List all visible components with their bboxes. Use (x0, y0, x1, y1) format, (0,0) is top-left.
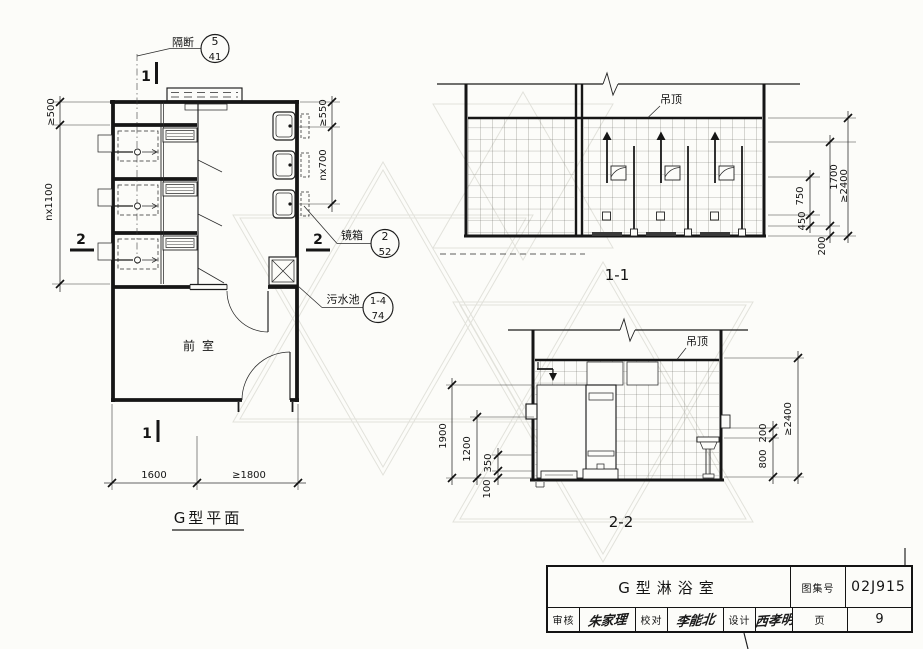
s22-ceiling-label: 吊顶 (686, 335, 708, 348)
section-marker-1-bottom: 1 (142, 420, 158, 442)
section-marker-2-left: 2 (70, 232, 94, 250)
section-2-2: 吊顶 1900 1200 350 100 (438, 319, 804, 531)
bench-3 (163, 236, 197, 250)
s22-dim-1900: 1900 (438, 423, 449, 448)
drawing-title: G型淋浴室 (548, 567, 791, 607)
shower-3 (98, 239, 158, 269)
partition-note-label: 隔断 (172, 35, 194, 49)
s11-structure (437, 73, 800, 254)
section-marker-2-right: 2 (306, 232, 330, 250)
s22-dim-100: 100 (482, 479, 493, 498)
drawing-canvas: 1 1 2 2 隔断 5 41 镜箱 2 (0, 0, 923, 649)
marker-1-top-label: 1 (141, 69, 151, 85)
page-number: 9 (848, 608, 911, 631)
mirror-note-den: 52 (379, 247, 392, 258)
s22-dim-total: ≥2400 (783, 402, 794, 436)
s22-dim-800: 800 (758, 449, 769, 468)
dim-left-top: ≥500 (46, 98, 57, 125)
dim-bottom-1: 1600 (141, 470, 166, 481)
partition-note-den: 41 (209, 52, 222, 63)
marker-1-bottom-label: 1 (142, 426, 152, 442)
s11-ceiling-note: 吊顶 (648, 93, 682, 118)
s22-dims-left: 1900 1200 350 100 (438, 378, 534, 499)
plan-view: 1 1 2 2 隔断 5 41 镜箱 2 (44, 35, 399, 531)
plan-top-vent (167, 88, 242, 110)
s22-dim-1200: 1200 (462, 436, 473, 461)
plan-title: G型平面 (172, 509, 244, 530)
s11-dim-200: 200 (817, 236, 828, 255)
s11-dim-750: 750 (795, 186, 806, 205)
plan-door-entrance (242, 352, 290, 400)
s22-dim-200: 200 (758, 423, 769, 442)
basin-1 (273, 112, 309, 140)
design-signature: 西孝明 (756, 608, 793, 631)
plan-showers (98, 54, 158, 269)
s22-dims-right: 200 800 ≥2400 (724, 351, 804, 484)
dim-right-top: ≥550 (318, 99, 329, 126)
section-marker-1-top: 1 (141, 62, 156, 85)
sink-note-num: 1-4 (370, 296, 386, 307)
shower-1 (98, 131, 158, 161)
check-signature-text: 李能北 (675, 609, 716, 631)
s22-stall (537, 385, 618, 479)
plan-dim-right: ≥550 nx700 (298, 96, 340, 212)
basin-2 (273, 151, 309, 179)
bench-1 (163, 128, 197, 142)
sink-note-label: 污水池 (327, 293, 360, 306)
section-1-1: 吊顶 750 450 200 1700 ≥2400 1-1 (437, 73, 856, 284)
s22-title: 2-2 (609, 513, 634, 531)
marker-2-right-label: 2 (313, 232, 323, 248)
note-partition: 隔断 5 41 (137, 35, 229, 64)
design-signature-text: 西孝明 (756, 609, 793, 631)
dim-right-main: nx700 (318, 149, 329, 180)
check-signature: 李能北 (668, 608, 724, 631)
check-label: 校对 (636, 608, 668, 631)
bench-2 (163, 182, 197, 196)
title-block: G型淋浴室 图集号 02J915 审核 朱家理 校对 李能北 设计 西孝明 页 … (546, 565, 913, 633)
plan-floor-sink (269, 257, 297, 285)
anteroom-label: 前室 (183, 338, 221, 353)
shower-2 (98, 185, 158, 215)
note-sink: 污水池 1-4 74 (298, 286, 393, 323)
mirror-note-num: 2 (382, 230, 389, 243)
plan-dim-bottom: 1600 ≥1800 (104, 404, 306, 490)
audit-label: 审核 (548, 608, 580, 631)
audit-signature: 朱家理 (580, 608, 636, 631)
s11-dims: 750 450 200 1700 ≥2400 (768, 111, 856, 256)
plan-title-text: G型平面 (174, 509, 243, 527)
s11-title: 1-1 (605, 266, 630, 284)
s11-dim-450: 450 (797, 211, 808, 230)
s11-dim-total: ≥2400 (839, 169, 850, 203)
s22-ceiling-note: 吊顶 (677, 335, 708, 360)
dim-left-main: nx1100 (44, 183, 55, 221)
title-block-row-top: G型淋浴室 图集号 02J915 (548, 567, 911, 608)
dim-bottom-2: ≥1800 (232, 470, 266, 481)
sink-note-den: 74 (372, 311, 385, 322)
drawing-sheet: 1 1 2 2 隔断 5 41 镜箱 2 (0, 0, 923, 649)
partition-note-num: 5 (212, 35, 219, 48)
design-label: 设计 (724, 608, 756, 631)
s22-dim-350: 350 (483, 453, 494, 472)
mirror-note-label: 镜箱 (341, 228, 363, 242)
title-block-row-bottom: 审核 朱家理 校对 李能北 设计 西孝明 页 9 (548, 608, 911, 631)
plan-washbasins (273, 112, 309, 218)
marker-2-left-label: 2 (76, 232, 86, 248)
atlas-number-label: 图集号 (791, 567, 846, 607)
atlas-number-value: 02J915 (846, 567, 911, 607)
s11-ceiling-label: 吊顶 (660, 93, 682, 106)
plan-door-inner (227, 291, 268, 332)
page-label: 页 (793, 608, 848, 631)
audit-signature-text: 朱家理 (587, 609, 628, 631)
